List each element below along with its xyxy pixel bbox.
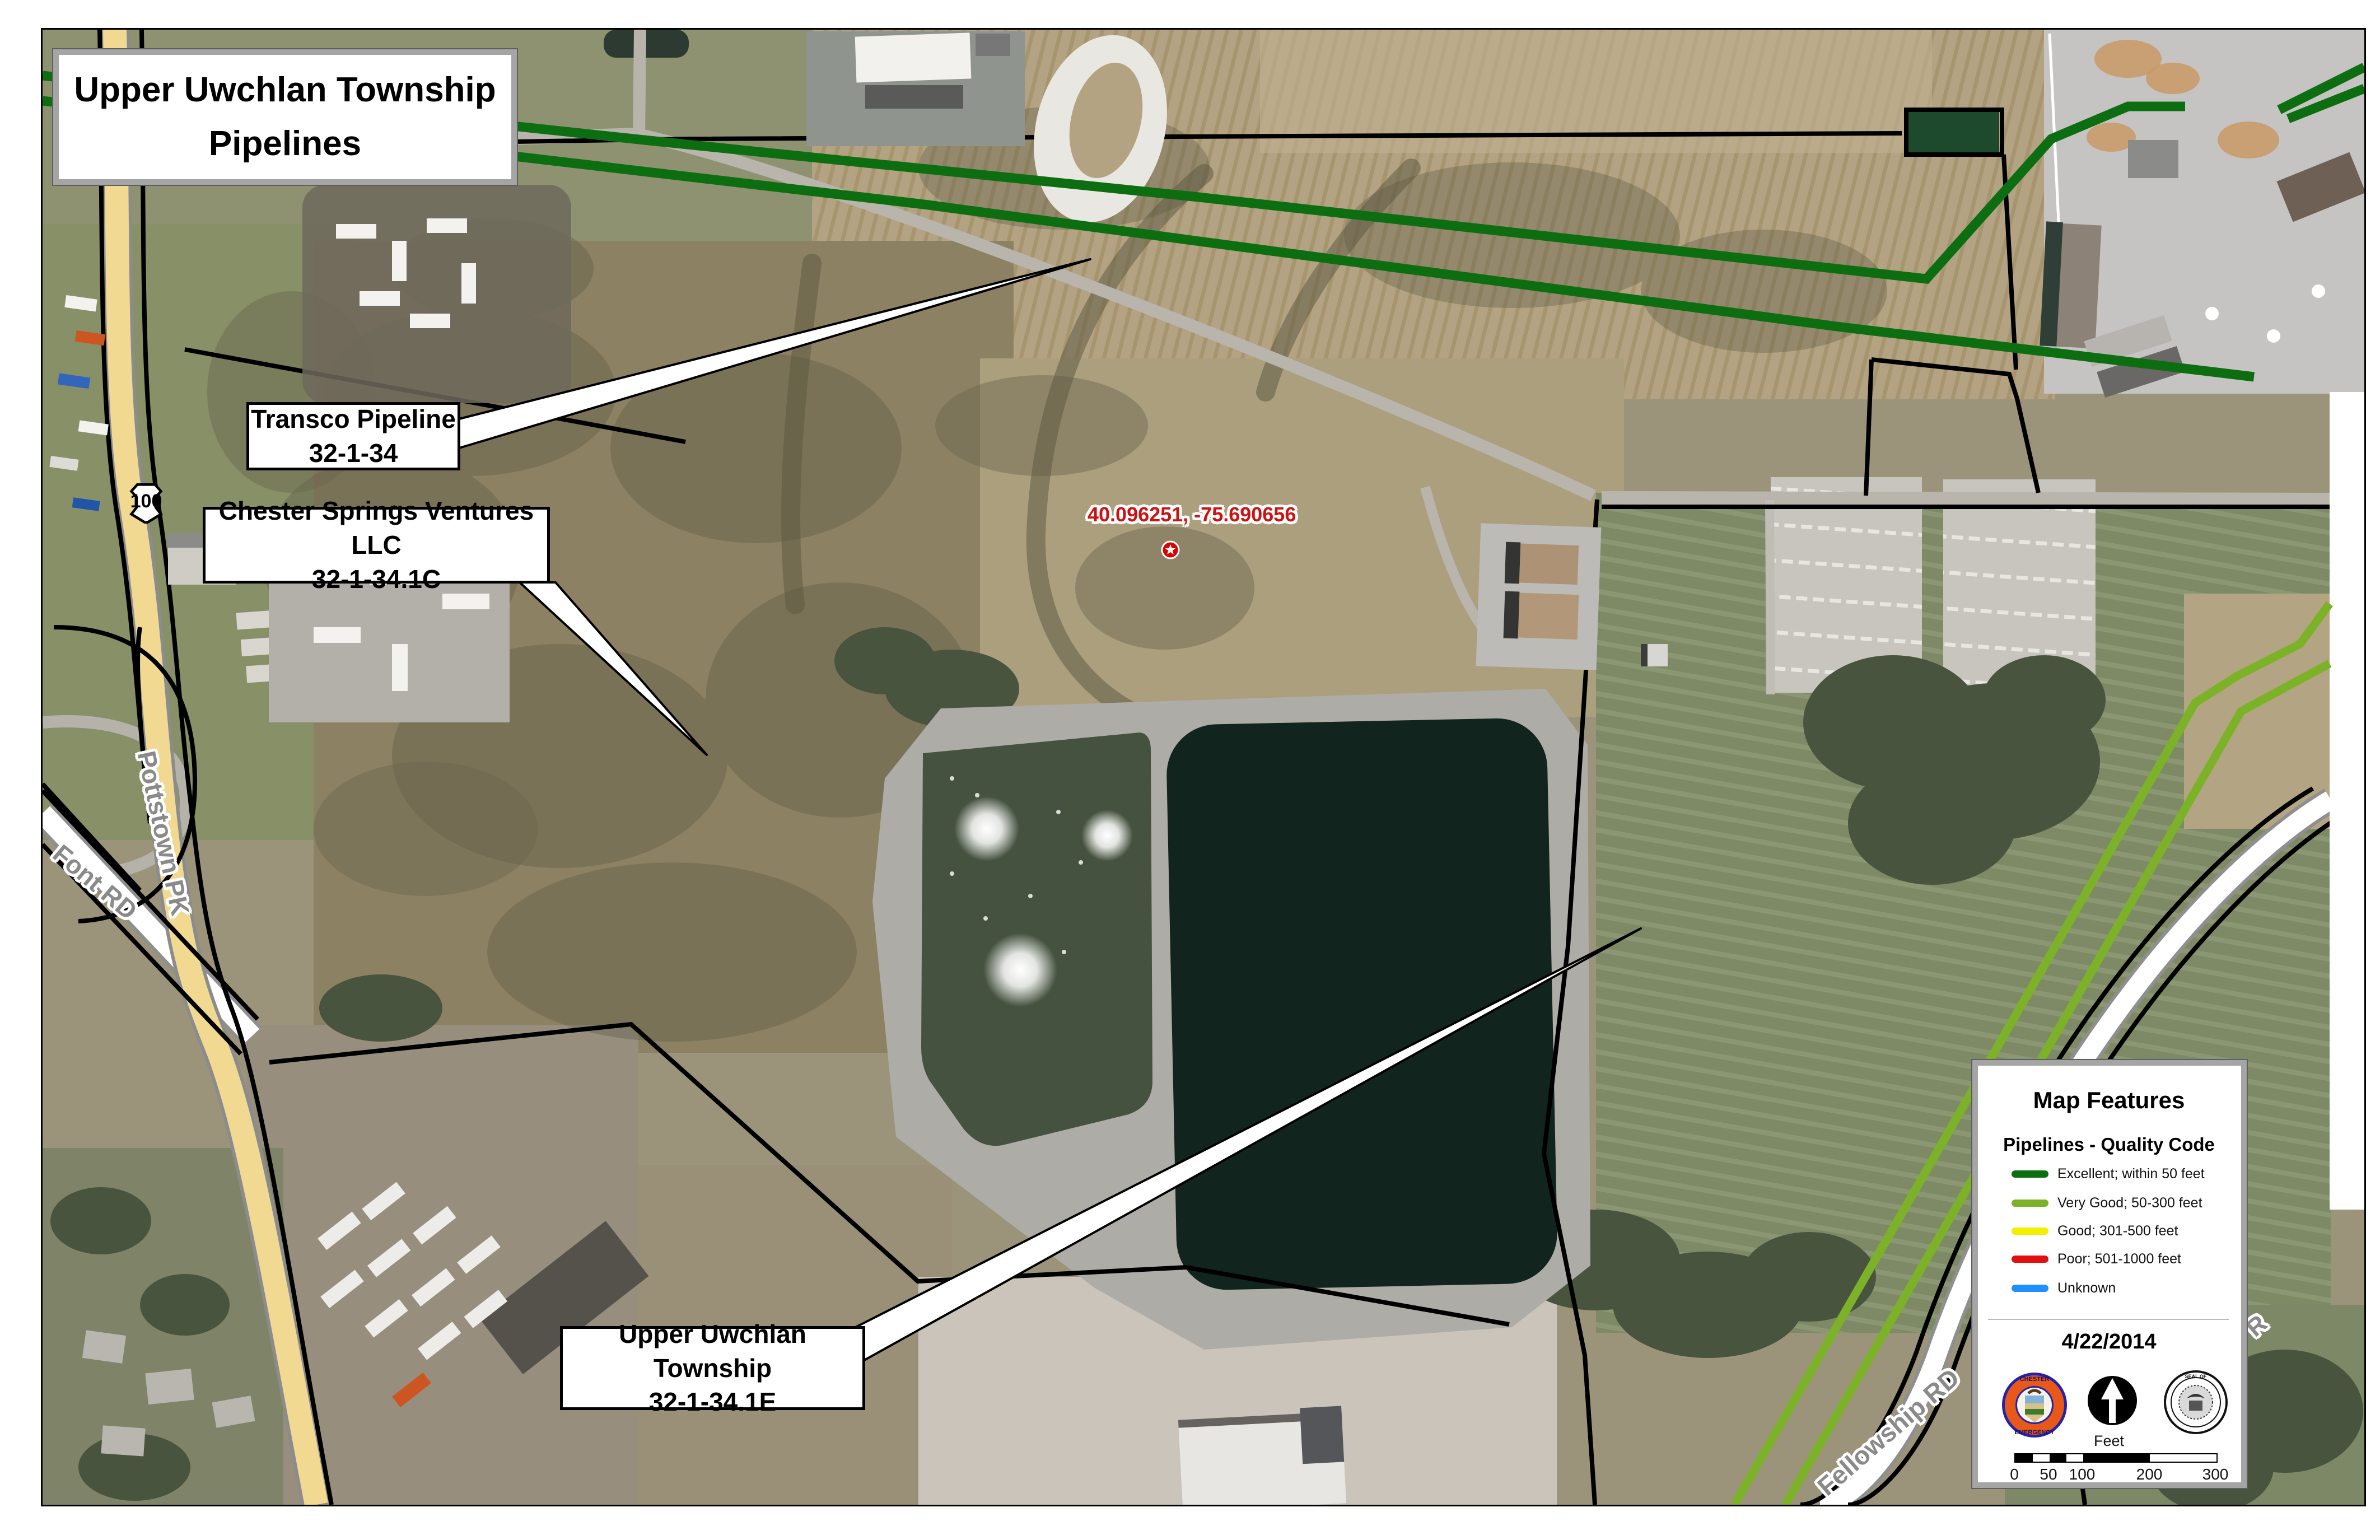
poor-line-swatch (2012, 1256, 2048, 1263)
legend-item-excellent: Excellent; within 50 feet (2012, 1165, 2205, 1182)
callout-transco-pipeline: Transco Pipeline 32-1-34 (246, 402, 460, 470)
callout-transco-parcel: 32-1-34 (309, 436, 398, 470)
callout-transco-name: Transco Pipeline (251, 402, 456, 436)
very-good-line-swatch (2012, 1200, 2048, 1207)
unknown-line-swatch (2012, 1285, 2048, 1292)
route-shield-number: 100 (128, 491, 165, 512)
poi-coordinates-label: 40.096251, -75.690656 (1088, 503, 1296, 526)
callout-chester-name: Chester Springs Ventures LLC (206, 494, 547, 562)
legend-item-good: Good; 301-500 feet (2012, 1222, 2178, 1239)
legend-divider (1988, 1319, 2229, 1320)
callout-chester-parcel: 32-1-34.1C (312, 562, 441, 596)
map-title-box: Upper Uwchlan Township Pipelines (53, 49, 517, 185)
route-100-shield: 100 (128, 482, 165, 525)
svg-text:CHESTER: CHESTER (2020, 1376, 2050, 1383)
scalebar-unit-label: Feet (1978, 1432, 2240, 1450)
top-pond (604, 30, 689, 58)
legend-subtitle: Pipelines - Quality Code (1978, 1134, 2240, 1155)
map-title-line1: Upper Uwchlan Township (74, 63, 496, 117)
good-line-swatch (2012, 1228, 2048, 1235)
svg-text:SEAL OF: SEAL OF (2185, 1374, 2207, 1379)
chester-county-emergency-services-seal: CHESTEREMERGENCY (2000, 1371, 2069, 1442)
poi-marker (1162, 542, 1179, 558)
callout-upper-name: Upper Uwchlan Township (563, 1317, 862, 1385)
legend-title: Map Features (1978, 1087, 2240, 1114)
north-arrow (2085, 1374, 2139, 1430)
map-title-line2: Pipelines (209, 117, 361, 171)
callout-upper-parcel: 32-1-34.1E (649, 1385, 777, 1419)
legend-item-very-good: Very Good; 50-300 feet (2012, 1194, 2202, 1211)
callout-chester-springs: Chester Springs Ventures LLC 32-1-34.1C (203, 507, 550, 584)
chester-county-pennsylvania-seal: SEAL OF (2163, 1369, 2229, 1438)
scalebar-ticks: 0 50 100 200 300 (2014, 1466, 2218, 1485)
excellent-line-swatch (2012, 1170, 2048, 1178)
scalebar (2014, 1453, 2218, 1463)
green-pond (1908, 112, 1999, 152)
legend-item-unknown: Unknown (2012, 1280, 2116, 1296)
callout-upper-uwchlan: Upper Uwchlan Township 32-1-34.1E (560, 1326, 865, 1410)
imagery-void (2330, 392, 2364, 1210)
legend-item-poor: Poor; 501-1000 feet (2012, 1250, 2181, 1267)
legend-panel: Map Features Pipelines - Quality Code Ex… (1972, 1060, 2247, 1488)
legend-date: 4/22/2014 (1978, 1330, 2240, 1354)
